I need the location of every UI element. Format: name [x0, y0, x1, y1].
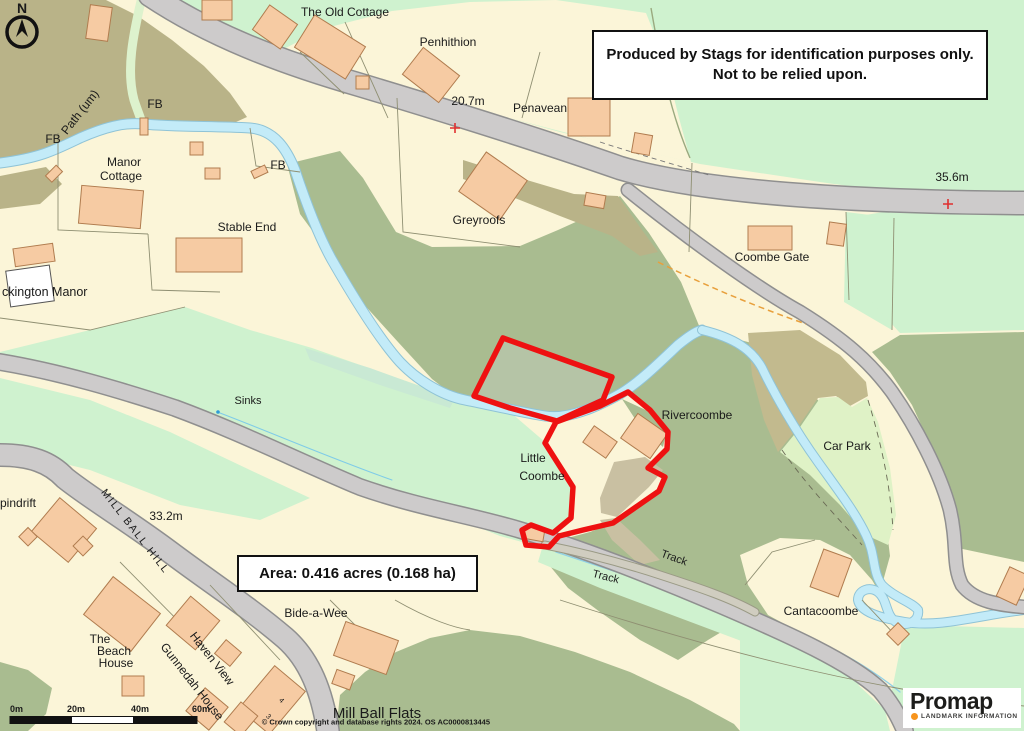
building: [190, 142, 203, 155]
building-penavean: [568, 98, 610, 136]
building: [122, 676, 144, 696]
label-cottage: Cottage: [100, 169, 142, 183]
label-coombe-gate: Coombe Gate: [735, 250, 810, 264]
scale-60m: 60m: [192, 704, 210, 714]
label-fb-2: FB: [45, 132, 60, 146]
building: [827, 222, 847, 246]
area-box: Area: 0.416 acres (0.168 ha): [237, 555, 478, 592]
label-cantacoombe: Cantacoombe: [784, 604, 859, 618]
building-stable-end: [176, 238, 242, 272]
building: [202, 0, 232, 20]
scale-bar-seg3: [133, 717, 197, 724]
label-coombe: Coombe: [519, 469, 565, 483]
promap-logo: Promap LANDMARK INFORMATION: [903, 688, 1021, 728]
scale-bar-seg1: [10, 717, 72, 724]
building: [205, 168, 220, 179]
disclaimer-box: Produced by Stags for identification pur…: [592, 30, 988, 100]
landmark-dot-icon: [911, 713, 918, 720]
disclaimer-line1: Produced by Stags for identification pur…: [606, 45, 973, 65]
promap-tagline: LANDMARK INFORMATION: [921, 713, 1018, 720]
site-plan-map: N The Old Cottage Penhithion 20.7m Penav…: [0, 0, 1024, 731]
label-spindrift: pindrift: [0, 496, 37, 510]
scale-20m: 20m: [67, 704, 85, 714]
label-20-7m: 20.7m: [451, 94, 484, 108]
building: [356, 76, 369, 89]
label-penhithion: Penhithion: [420, 35, 477, 49]
label-car-park: Car Park: [823, 439, 871, 453]
scale-40m: 40m: [131, 704, 149, 714]
label-33-2m: 33.2m: [149, 509, 182, 523]
label-bide-a-wee: Bide-a-Wee: [284, 606, 347, 620]
label-penavean: Penavean: [513, 101, 567, 115]
building-coombe-gate: [748, 226, 792, 250]
area-label: Area: 0.416 acres (0.168 ha): [259, 565, 456, 582]
sinks-dot: [216, 410, 220, 414]
scale-0m: 0m: [10, 704, 23, 714]
label-house: House: [99, 656, 134, 670]
label-ckington-manor: ckington Manor: [2, 285, 87, 299]
compass-n-label: N: [17, 0, 27, 16]
label-sinks: Sinks: [235, 395, 262, 407]
footbridge: [140, 118, 148, 135]
label-fb-3: FB: [270, 158, 285, 172]
map-canvas: N The Old Cottage Penhithion 20.7m Penav…: [0, 0, 1024, 731]
label-stable-end: Stable End: [218, 220, 277, 234]
copyright-note: © Crown copyright and database rights 20…: [262, 718, 490, 727]
label-greyroofs: Greyroofs: [453, 213, 506, 227]
label-fb-1: FB: [147, 97, 162, 111]
label-the-old-cottage: The Old Cottage: [301, 5, 389, 19]
building-manor-cottage: [78, 185, 143, 228]
disclaimer-line2: Not to be relied upon.: [713, 65, 867, 85]
building: [584, 192, 606, 208]
label-rivercoombe: Rivercoombe: [662, 408, 733, 422]
label-35-6m: 35.6m: [935, 170, 968, 184]
label-manor: Manor: [107, 155, 141, 169]
label-little: Little: [520, 451, 546, 465]
building: [631, 133, 652, 156]
building: [86, 5, 113, 42]
promap-brand: Promap: [903, 688, 1021, 712]
